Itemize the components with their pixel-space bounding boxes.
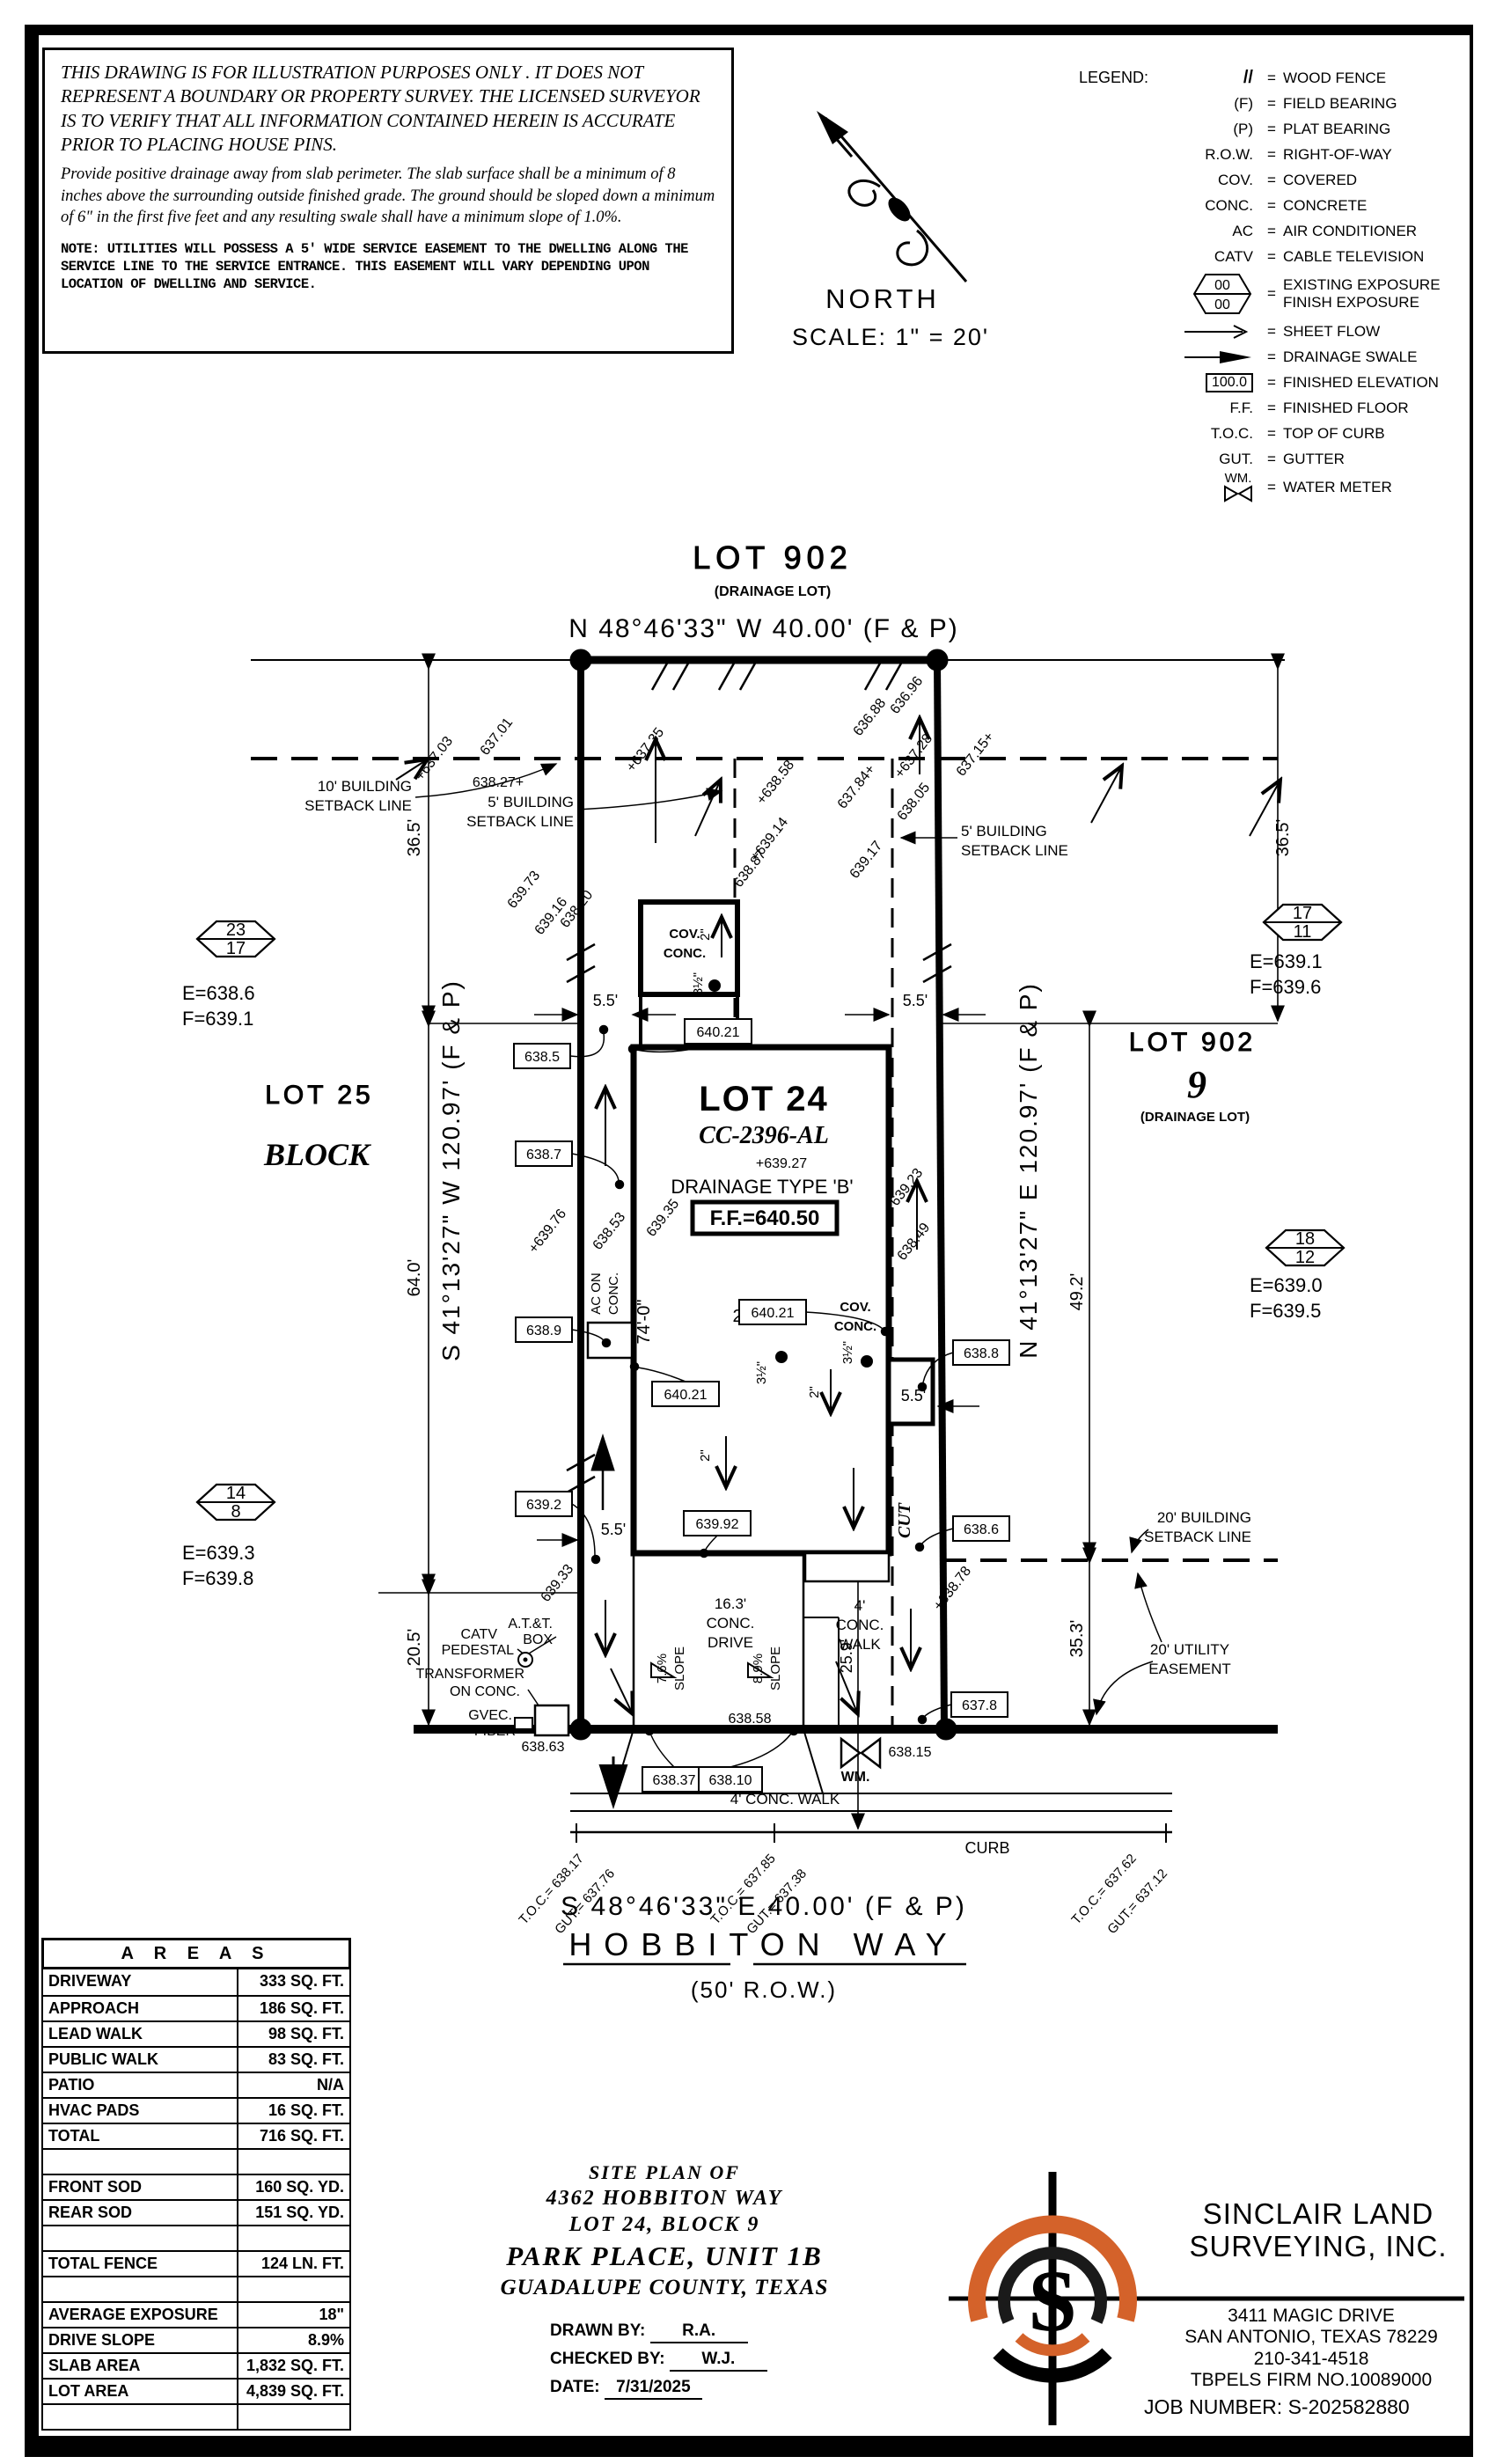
company-city: SAN ANTONIO, TEXAS 78229	[1149, 2327, 1473, 2348]
company-address: 3411 MAGIC DRIVE SAN ANTONIO, TEXAS 7822…	[1149, 2306, 1473, 2391]
legend-row: CATV=CABLE TELEVISION	[1079, 244, 1475, 269]
areas-row-label: SLAB AREA	[43, 2354, 238, 2378]
areas-row-label: LEAD WALK	[43, 2022, 238, 2046]
areas-row: REAR SOD151 SQ. YD.	[43, 2199, 349, 2225]
legend-symbol: WM.	[1162, 472, 1260, 502]
legend-label: SHEET FLOW	[1283, 323, 1475, 341]
legend-label: FIELD BEARING	[1283, 95, 1475, 113]
legend-symbol: //	[1162, 68, 1260, 88]
legend-label: WATER METER	[1283, 479, 1475, 496]
legend-label: CONCRETE	[1283, 197, 1475, 215]
legend-symbol: COV.	[1162, 172, 1260, 189]
areas-row-label: TOTAL	[43, 2124, 238, 2148]
legend-symbol: (F)	[1162, 95, 1260, 113]
areas-row: TOTAL FENCE124 LN. FT.	[43, 2250, 349, 2276]
areas-row-value: 124 LN. FT.	[238, 2252, 349, 2276]
areas-row-value: 4,839 SQ. FT.	[238, 2380, 349, 2403]
legend-symbol: AC	[1162, 223, 1260, 240]
legend-row: (P)=PLAT BEARING	[1079, 116, 1475, 142]
areas-row-value: 333 SQ. FT.	[238, 1969, 349, 1995]
areas-row-label: APPROACH	[43, 1997, 238, 2020]
areas-row-value: 151 SQ. YD.	[238, 2201, 349, 2225]
water-meter-icon	[1223, 485, 1253, 502]
sheet-flow-icon	[1184, 325, 1253, 339]
checked-by-label: CHECKED BY:	[550, 2350, 665, 2368]
legend-label: FINISHED ELEVATION	[1283, 374, 1475, 392]
areas-row-label: REAR SOD	[43, 2201, 238, 2225]
disclaimer-main: THIS DRAWING IS FOR ILLUSTRATION PURPOSE…	[61, 61, 715, 157]
areas-row: LEAD WALK98 SQ. FT.	[43, 2020, 349, 2046]
legend-label: GUTTER	[1283, 451, 1475, 468]
areas-row-label	[43, 2277, 238, 2301]
legend-label: WOOD FENCE	[1283, 70, 1475, 87]
legend-row: CONC.=CONCRETE	[1079, 193, 1475, 218]
date-value: 7/31/2025	[605, 2378, 702, 2400]
areas-row: APPROACH186 SQ. FT.	[43, 1995, 349, 2020]
legend-symbol: T.O.C.	[1162, 425, 1260, 443]
exposure-hexagon-icon: 0000	[1192, 269, 1253, 319]
legend-symbol	[1162, 325, 1260, 339]
legend-title: LEGEND:	[1079, 69, 1162, 87]
areas-table: A R E A S DRIVEWAY333 SQ. FT.APPROACH186…	[41, 1938, 351, 2431]
areas-row-label: DRIVE SLOPE	[43, 2328, 238, 2352]
areas-row	[43, 2225, 349, 2250]
areas-row-label: LOT AREA	[43, 2380, 238, 2403]
checked-by-value: W.J.	[670, 2350, 767, 2372]
areas-row: TOTAL716 SQ. FT.	[43, 2123, 349, 2148]
legend-row: (F)=FIELD BEARING	[1079, 91, 1475, 116]
date-label: DATE:	[550, 2378, 600, 2396]
areas-row: DRIVEWAY333 SQ. FT.	[43, 1969, 349, 1995]
legend-symbol: GUT.	[1162, 451, 1260, 468]
title-line-3: LOT 24, BLOCK 9	[458, 2213, 871, 2237]
areas-row-value: 8.9%	[238, 2328, 349, 2352]
company-name-2: SURVEYING, INC.	[1163, 2231, 1473, 2263]
legend-row: 0000=EXISTING EXPOSURE FINISH EXPOSURE	[1079, 269, 1475, 319]
legend-label: COVERED	[1283, 172, 1475, 189]
legend-row: COV.=COVERED	[1079, 167, 1475, 193]
title-block: SITE PLAN OF 4362 HOBBITON WAY LOT 24, B…	[458, 2161, 871, 2406]
areas-row-label: PATIO	[43, 2073, 238, 2097]
areas-row-label: FRONT SOD	[43, 2175, 238, 2199]
drawn-by-label: DRAWN BY:	[550, 2321, 645, 2340]
legend-label: DRAINAGE SWALE	[1283, 348, 1475, 366]
areas-row-value: 83 SQ. FT.	[238, 2048, 349, 2072]
company-street: 3411 MAGIC DRIVE	[1149, 2306, 1473, 2327]
areas-row: DRIVE SLOPE8.9%	[43, 2327, 349, 2352]
areas-row-label	[43, 2150, 238, 2174]
areas-table-title: A R E A S	[41, 1938, 351, 1969]
areas-row	[43, 2403, 349, 2429]
company-name: SINCLAIR LAND SURVEYING, INC.	[1163, 2198, 1473, 2263]
legend-row: F.F.=FINISHED FLOOR	[1079, 395, 1475, 421]
legend-label: AIR CONDITIONER	[1283, 223, 1475, 240]
legend-symbol: R.O.W.	[1162, 146, 1260, 164]
areas-row-value: 16 SQ. FT.	[238, 2099, 349, 2123]
legend-symbol: CONC.	[1162, 197, 1260, 215]
areas-row-value	[238, 2405, 349, 2429]
svg-text:00: 00	[1214, 278, 1230, 293]
legend-row: =SHEET FLOW	[1079, 319, 1475, 344]
legend-symbol: 0000	[1162, 269, 1260, 319]
title-line-4: PARK PLACE, UNIT 1B	[458, 2240, 871, 2272]
areas-row-value	[238, 2226, 349, 2250]
legend-symbol: (P)	[1162, 121, 1260, 138]
areas-row: LOT AREA4,839 SQ. FT.	[43, 2378, 349, 2403]
svg-text:00: 00	[1214, 297, 1230, 312]
areas-row-value: 160 SQ. YD.	[238, 2175, 349, 2199]
legend-row: WM.=WATER METER	[1079, 472, 1475, 502]
title-line-5: GUADALUPE COUNTY, TEXAS	[458, 2276, 871, 2300]
legend-symbol: 100.0	[1162, 373, 1260, 392]
legend-label: PLAT BEARING	[1283, 121, 1475, 138]
legend-label: TOP OF CURB	[1283, 425, 1475, 443]
areas-row-value: N/A	[238, 2073, 349, 2097]
areas-row-value	[238, 2277, 349, 2301]
legend-symbol	[1162, 350, 1260, 364]
legend-symbol: CATV	[1162, 248, 1260, 266]
legend-symbol: F.F.	[1162, 400, 1260, 417]
areas-row-value: 186 SQ. FT.	[238, 1997, 349, 2020]
title-line-2: 4362 HOBBITON WAY	[458, 2187, 871, 2211]
legend-row: R.O.W.=RIGHT-OF-WAY	[1079, 142, 1475, 167]
legend: LEGEND://=WOOD FENCE(F)=FIELD BEARING(P)…	[1079, 65, 1475, 502]
drainage-swale-icon	[1184, 350, 1253, 364]
areas-row: AVERAGE EXPOSURE18"	[43, 2301, 349, 2327]
legend-label: CABLE TELEVISION	[1283, 248, 1475, 266]
areas-row-value: 716 SQ. FT.	[238, 2124, 349, 2148]
areas-row: FRONT SOD160 SQ. YD.	[43, 2174, 349, 2199]
disclaimer-note: NOTE: UTILITIES WILL POSSESS A 5' WIDE S…	[61, 240, 715, 293]
disclaimer-box: THIS DRAWING IS FOR ILLUSTRATION PURPOSE…	[42, 48, 734, 354]
legend-label: RIGHT-OF-WAY	[1283, 146, 1475, 164]
areas-row-value	[238, 2150, 349, 2174]
areas-row-value: 98 SQ. FT.	[238, 2022, 349, 2046]
areas-row: SLAB AREA1,832 SQ. FT.	[43, 2352, 349, 2378]
legend-label: EXISTING EXPOSURE FINISH EXPOSURE	[1283, 276, 1475, 311]
legend-row: GUT.=GUTTER	[1079, 446, 1475, 472]
title-line-1: SITE PLAN OF	[458, 2161, 871, 2184]
areas-row-value: 1,832 SQ. FT.	[238, 2354, 349, 2378]
legend-row: =DRAINAGE SWALE	[1079, 344, 1475, 370]
disclaimer-drainage: Provide positive drainage away from slab…	[61, 164, 715, 229]
areas-row-label: HVAC PADS	[43, 2099, 238, 2123]
areas-row-label: AVERAGE EXPOSURE	[43, 2303, 238, 2327]
areas-row-label: TOTAL FENCE	[43, 2252, 238, 2276]
drawn-by-value: R.A.	[650, 2321, 748, 2343]
legend-row: T.O.C.=TOP OF CURB	[1079, 421, 1475, 446]
company-firm: TBPELS FIRM NO.10089000	[1149, 2370, 1473, 2391]
areas-row-value: 18"	[238, 2303, 349, 2327]
areas-row-label	[43, 2405, 238, 2429]
areas-row-label: DRIVEWAY	[43, 1969, 238, 1995]
legend-row: AC=AIR CONDITIONER	[1079, 218, 1475, 244]
areas-row: PUBLIC WALK83 SQ. FT.	[43, 2046, 349, 2072]
company-phone: 210-341-4518	[1149, 2349, 1473, 2370]
areas-row: PATION/A	[43, 2072, 349, 2097]
legend-label: FINISHED FLOOR	[1283, 400, 1475, 417]
areas-row	[43, 2276, 349, 2301]
areas-row-label	[43, 2226, 238, 2250]
job-number: JOB NUMBER: S-202582880	[1144, 2395, 1478, 2419]
legend-row: 100.0=FINISHED ELEVATION	[1079, 370, 1475, 395]
areas-row-label: PUBLIC WALK	[43, 2048, 238, 2072]
areas-row: HVAC PADS16 SQ. FT.	[43, 2097, 349, 2123]
areas-row	[43, 2148, 349, 2174]
company-name-1: SINCLAIR LAND	[1163, 2198, 1473, 2231]
legend-row: LEGEND://=WOOD FENCE	[1079, 65, 1475, 91]
